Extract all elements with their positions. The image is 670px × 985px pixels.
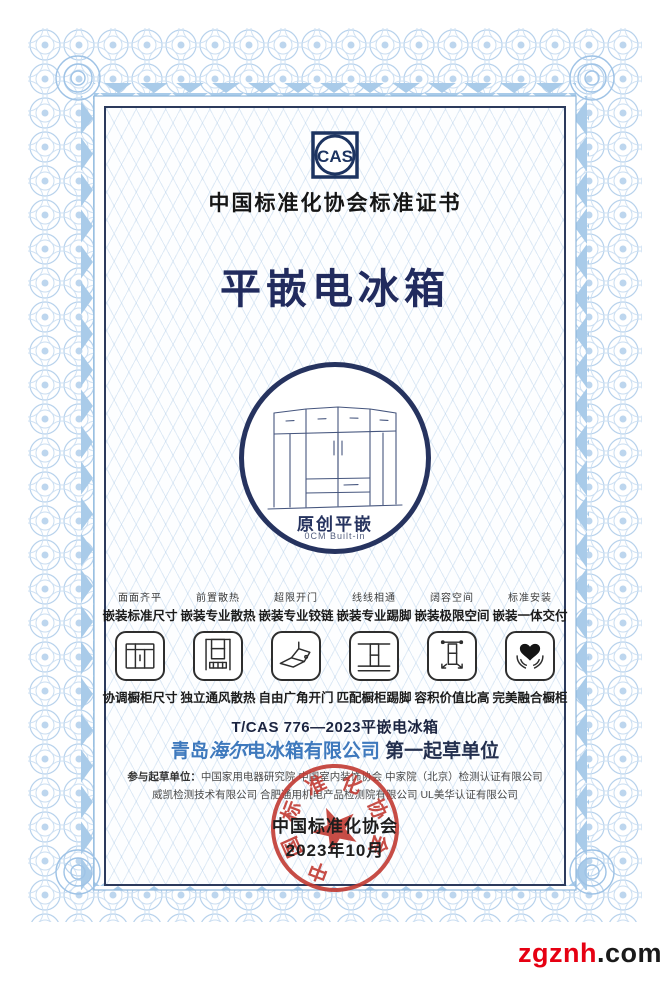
feature-tagline: 面面齐平 xyxy=(102,589,178,604)
standard-code-line: T/CAS 776—2023平嵌电冰箱 xyxy=(0,716,670,737)
feature-col-plinth: 线线相通 嵌装专业踢脚 匹配橱柜踢脚 xyxy=(336,589,412,706)
company-brand: 海尔 xyxy=(209,740,247,762)
issuer-name: 中国标准化协会 xyxy=(0,812,670,837)
feature-col-standard-size: 面面齐平 嵌装标准尺寸 协调橱柜尺寸 xyxy=(102,589,178,706)
watermark-tld: .com xyxy=(597,938,662,968)
issue-date: 2023年10月 xyxy=(0,836,670,861)
max-capacity-icon xyxy=(427,631,477,681)
feature-subtitle: 嵌装一体交付 xyxy=(492,605,568,624)
feature-subtitle: 嵌装极限空间 xyxy=(414,605,490,624)
feature-caption: 自由广角开门 xyxy=(258,687,334,706)
cas-logo-text: CAS xyxy=(317,147,353,166)
participants-label: 参与起草单位： xyxy=(127,771,201,783)
certificate-title: 中国标准化协会标准证书 xyxy=(0,187,670,217)
feature-caption: 容积价值比高 xyxy=(414,687,490,706)
feature-subtitle: 嵌装专业散热 xyxy=(180,605,256,624)
feature-grid: 面面齐平 嵌装标准尺寸 协调橱柜尺寸 前置散热 嵌装专业散热 xyxy=(102,589,568,706)
feature-tagline: 超限开门 xyxy=(258,589,334,604)
feature-col-ventilation: 前置散热 嵌装专业散热 独立通风散热 xyxy=(180,589,256,706)
feature-tagline: 标准安装 xyxy=(492,589,568,604)
feature-tagline: 线线相通 xyxy=(336,589,412,604)
wide-angle-hinge-icon xyxy=(271,631,321,681)
emblem-subtitle-text: 0CM Built-in xyxy=(244,531,426,541)
feature-subtitle: 嵌装专业铰链 xyxy=(258,605,334,624)
feature-caption: 独立通风散热 xyxy=(180,687,256,706)
watermark-site: zgznh xyxy=(518,938,597,968)
feature-col-hinge: 超限开门 嵌装专业铰链 自由广角开门 xyxy=(258,589,334,706)
embed-standard-size-icon xyxy=(115,631,165,681)
company-prefix: 青岛 xyxy=(171,741,209,762)
cas-logo-icon: CAS xyxy=(311,131,359,179)
site-watermark: zgznh.com xyxy=(518,938,662,969)
feature-caption: 完美融合橱柜 xyxy=(492,687,568,706)
feature-col-delivery: 标准安装 嵌装一体交付 完美融合橱柜 xyxy=(492,589,568,706)
feature-tagline: 阔容空间 xyxy=(414,589,490,604)
feature-col-capacity: 阔容空间 嵌装极限空间 容积价值比高 xyxy=(414,589,490,706)
plinth-match-icon xyxy=(349,631,399,681)
heart-hands-icon xyxy=(505,631,555,681)
feature-caption: 匹配橱柜踢脚 xyxy=(336,687,412,706)
product-name: 平嵌电冰箱 xyxy=(0,255,670,315)
front-ventilation-icon xyxy=(193,631,243,681)
certificate-page: CAS 中国标准化协会标准证书 平嵌电冰箱 原创平嵌 0CM Built-in xyxy=(0,0,670,985)
feature-subtitle: 嵌装标准尺寸 xyxy=(102,605,178,624)
feature-caption: 协调橱柜尺寸 xyxy=(102,687,178,706)
built-in-emblem: 原创平嵌 0CM Built-in xyxy=(239,362,431,554)
feature-tagline: 前置散热 xyxy=(180,589,256,604)
feature-subtitle: 嵌装专业踢脚 xyxy=(336,605,412,624)
